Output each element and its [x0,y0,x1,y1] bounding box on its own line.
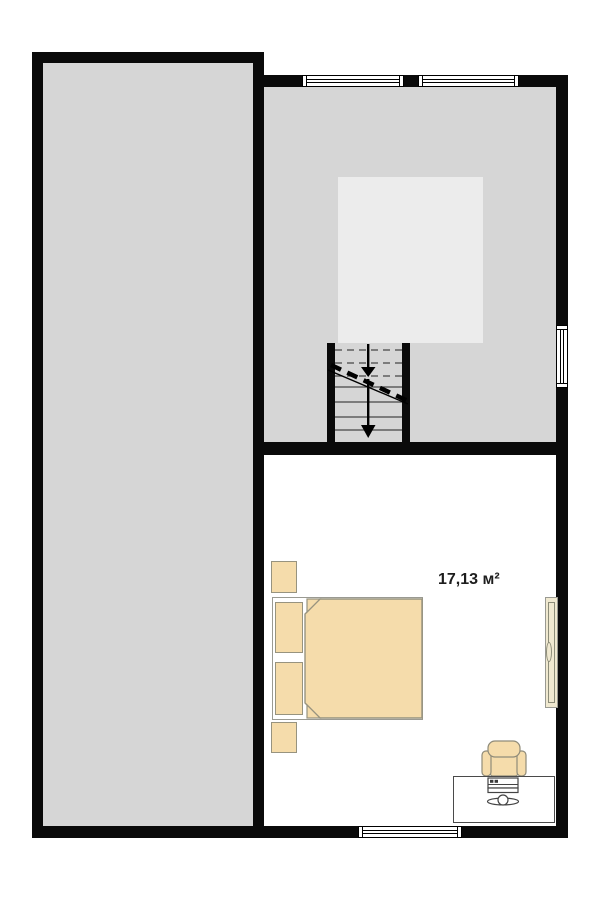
keyboard-tray [488,788,518,793]
wall-top-left [32,52,264,63]
office-chair [478,738,530,780]
bed-blanket [296,590,432,728]
top-window-left [302,75,404,87]
desk-gadget-knob [498,795,508,805]
door-handle-icon [546,642,552,662]
window-end-cap [556,383,568,388]
right-wall-window [556,325,568,388]
wall-bottom-exterior [32,826,568,838]
window-end-cap [457,826,462,838]
keyboard-key-icon [490,780,493,783]
left-room-floor [43,63,253,826]
desk-items [485,776,525,810]
stair-void-opening [338,177,483,343]
stairs-down-arrow-lower [361,379,376,438]
wall-right-exterior [556,75,568,838]
wall-middle-vertical [253,52,264,838]
keyboard-key-icon [495,780,498,783]
window-pane [363,826,457,838]
window-end-cap [399,75,404,87]
stairs-symbol [327,343,410,442]
nightstand-top [271,561,297,593]
window-pane [556,330,568,383]
window-pane [307,75,399,87]
nightstand-bottom [271,722,297,753]
window-end-cap [514,75,519,87]
wall-left-exterior [32,52,43,838]
door-panel [545,597,558,708]
floor-plan: 17,13 м² [0,0,608,900]
top-window-right [418,75,519,87]
keyboard-icon [488,778,518,788]
bottom-window [358,826,462,838]
chair-back [488,741,520,757]
window-pane [423,75,514,87]
wall-bedroom-divider [264,442,556,455]
bedroom-area-label: 17,13 м² [438,571,518,589]
stairs-down-arrow-upper [361,344,376,377]
blanket-body [305,599,422,718]
